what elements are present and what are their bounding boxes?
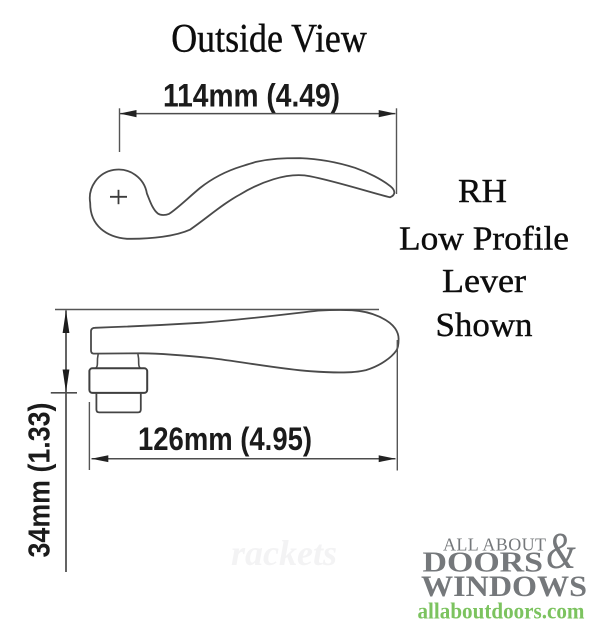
svg-text:34mm (1.33): 34mm (1.33) [21,403,56,558]
svg-text:rackets: rackets [231,533,337,573]
svg-text:RH: RH [458,173,507,210]
svg-text:126mm (4.95): 126mm (4.95) [138,421,312,457]
svg-text:Low Profile: Low Profile [399,221,569,258]
svg-text:allaboutdoors.com: allaboutdoors.com [418,599,585,624]
svg-text:Lever: Lever [442,263,527,300]
svg-text:Shown: Shown [436,307,533,344]
svg-text:Outside View: Outside View [171,16,367,61]
svg-text:114mm (4.49): 114mm (4.49) [163,78,340,114]
